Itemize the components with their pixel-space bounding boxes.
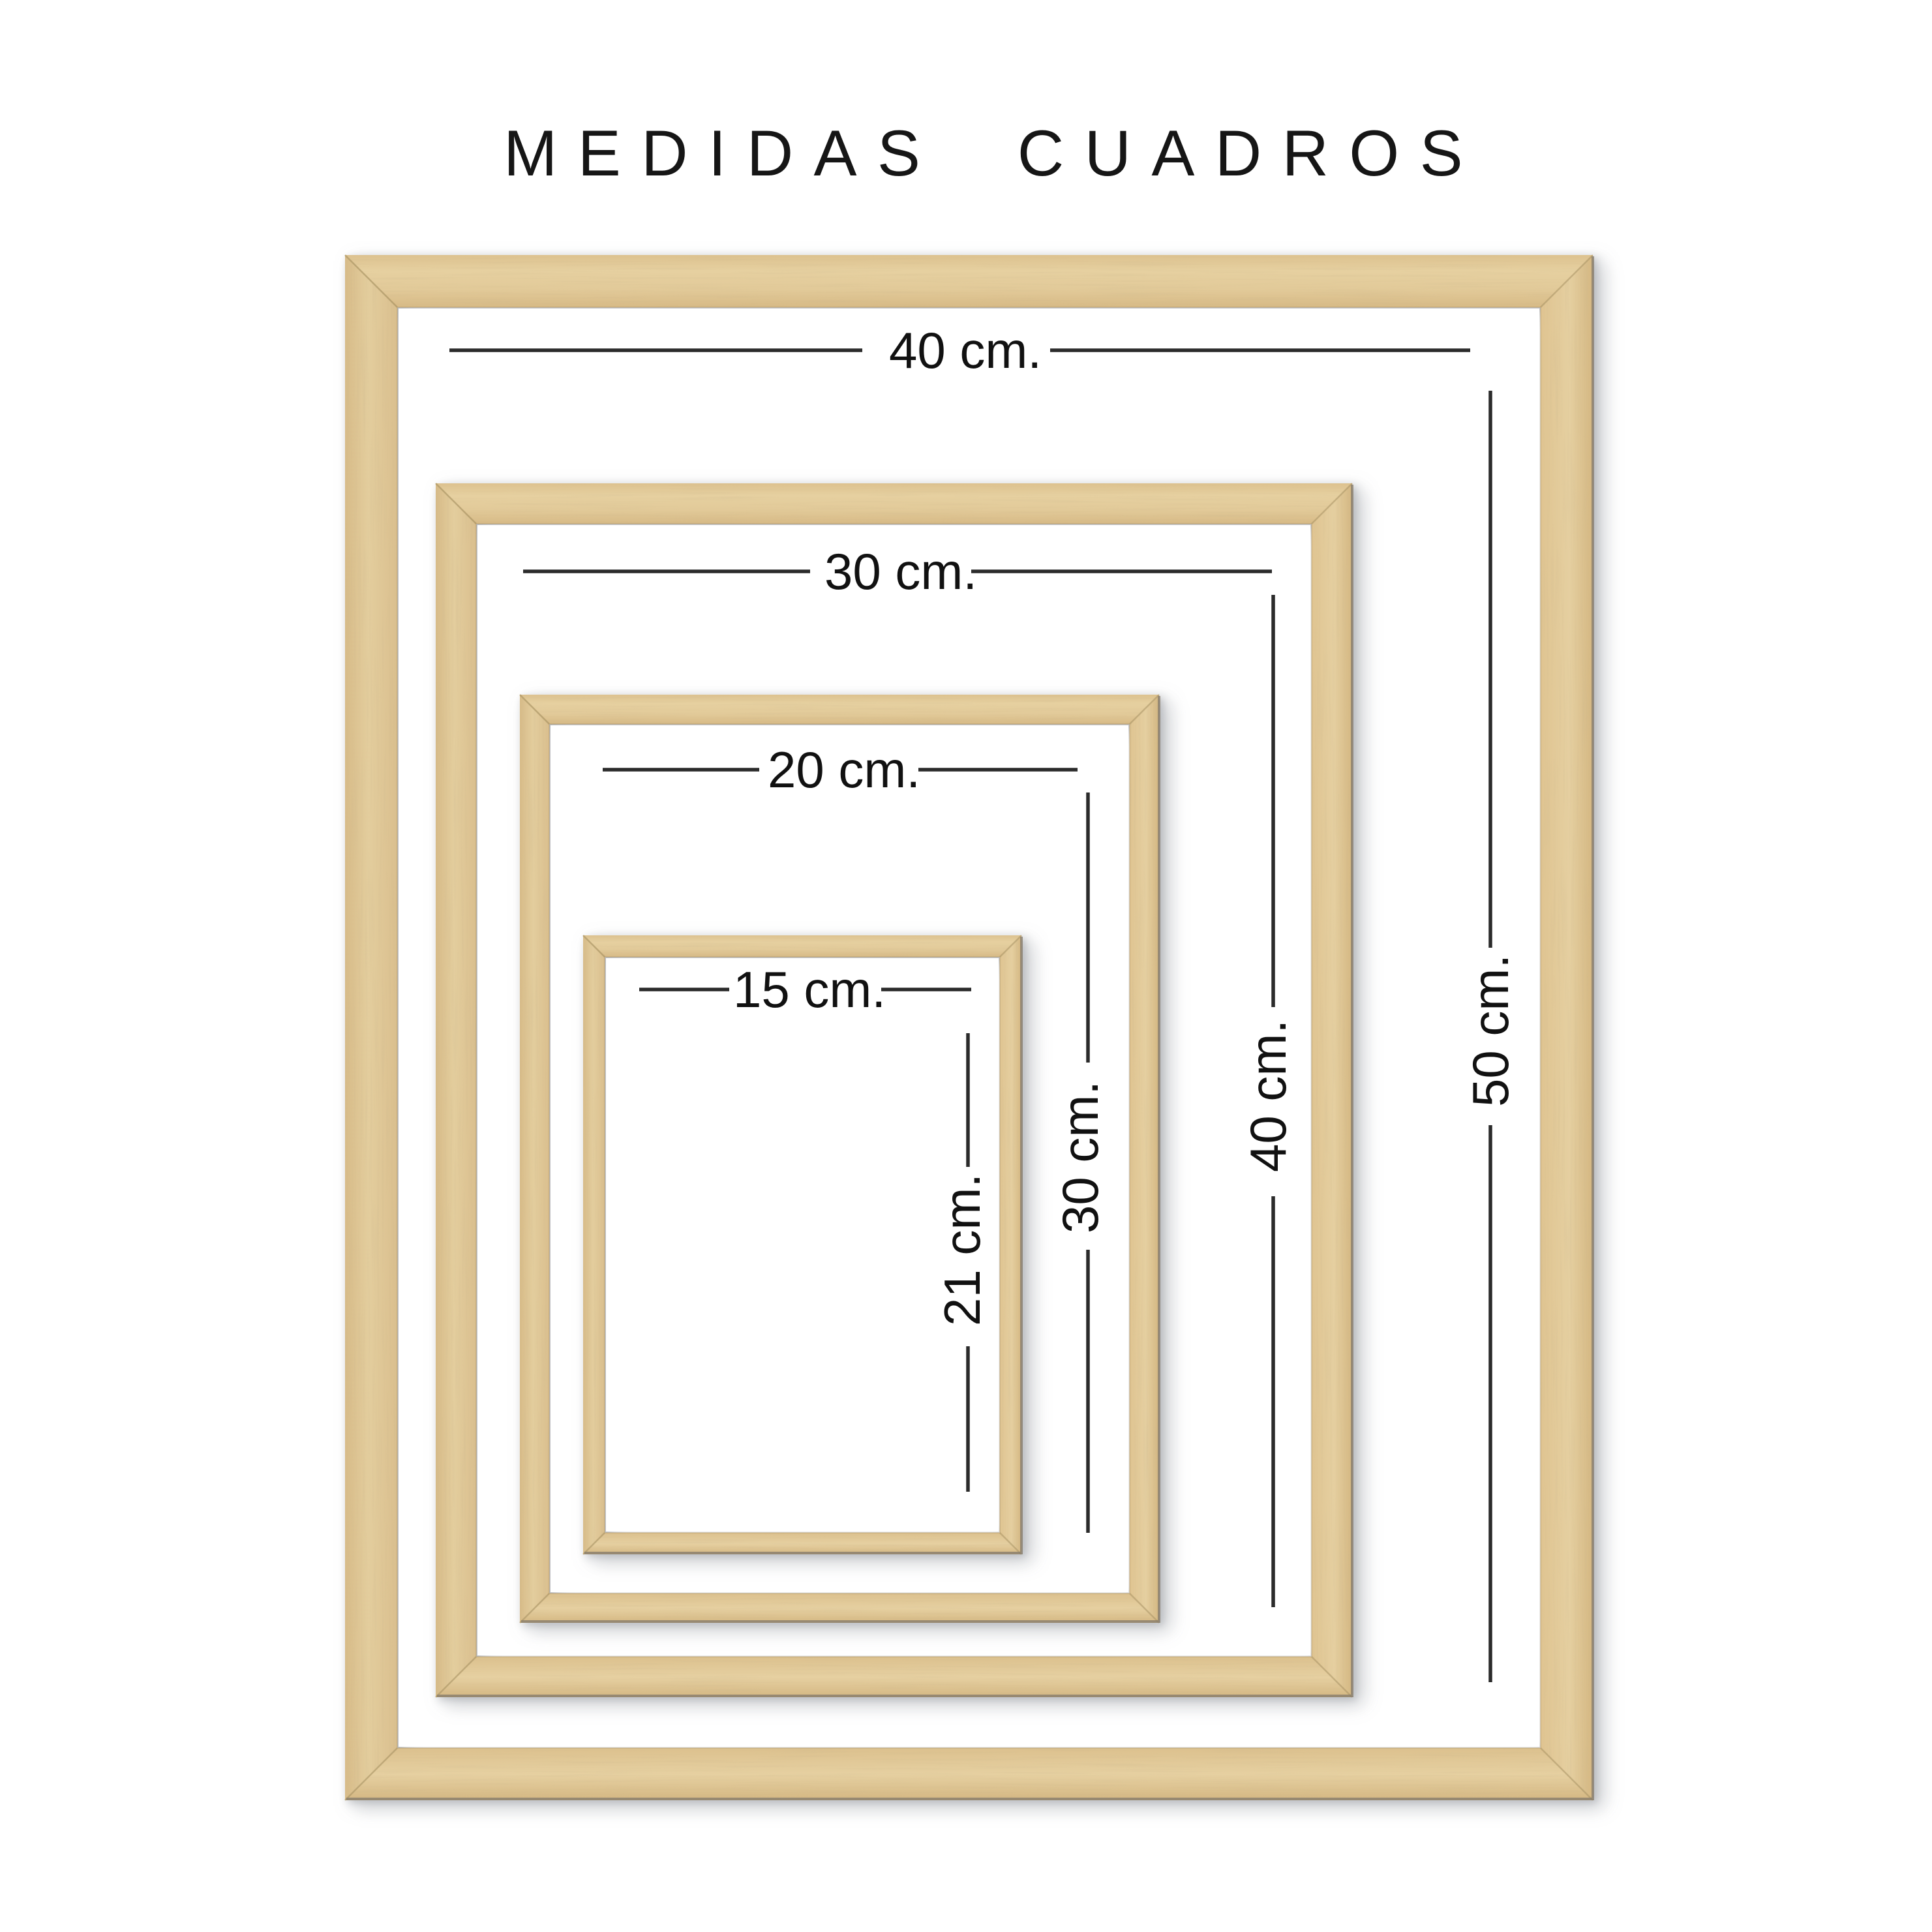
svg-text:40 cm.: 40 cm. [1239,1019,1297,1172]
svg-text:20 cm.: 20 cm. [768,741,920,798]
svg-text:15 cm.: 15 cm. [733,961,886,1018]
svg-text:MEDIDAS CUADROS: MEDIDAS CUADROS [504,117,1483,189]
svg-text:21 cm.: 21 cm. [933,1173,991,1326]
svg-text:40 cm.: 40 cm. [889,322,1042,379]
svg-text:30 cm.: 30 cm. [824,543,977,600]
svg-text:50 cm.: 50 cm. [1462,954,1519,1107]
svg-text:30 cm.: 30 cm. [1051,1081,1109,1233]
